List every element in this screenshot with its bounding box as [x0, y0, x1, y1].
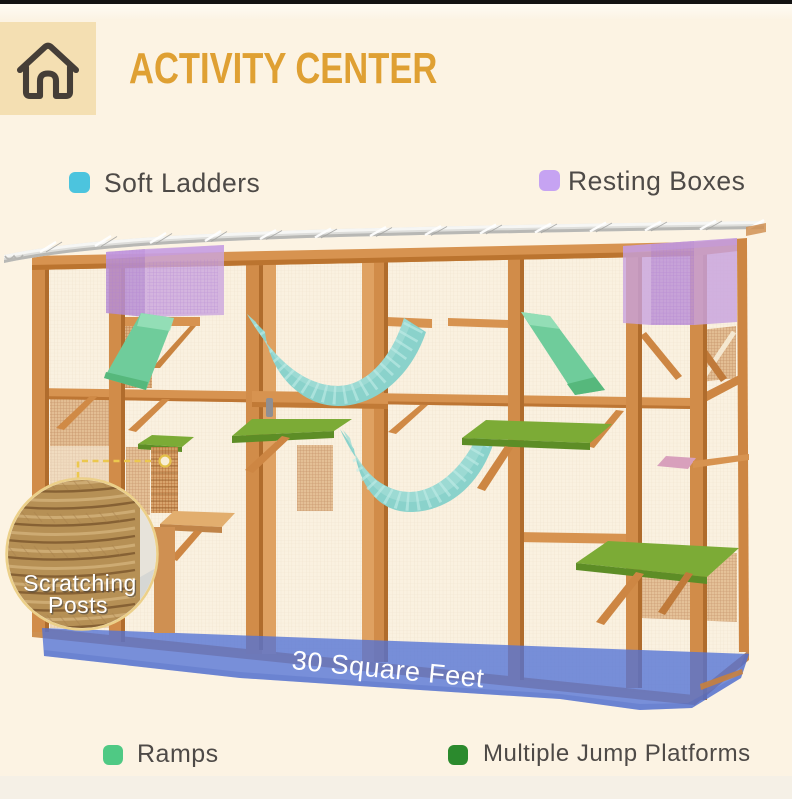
svg-text:Posts: Posts	[48, 592, 108, 618]
